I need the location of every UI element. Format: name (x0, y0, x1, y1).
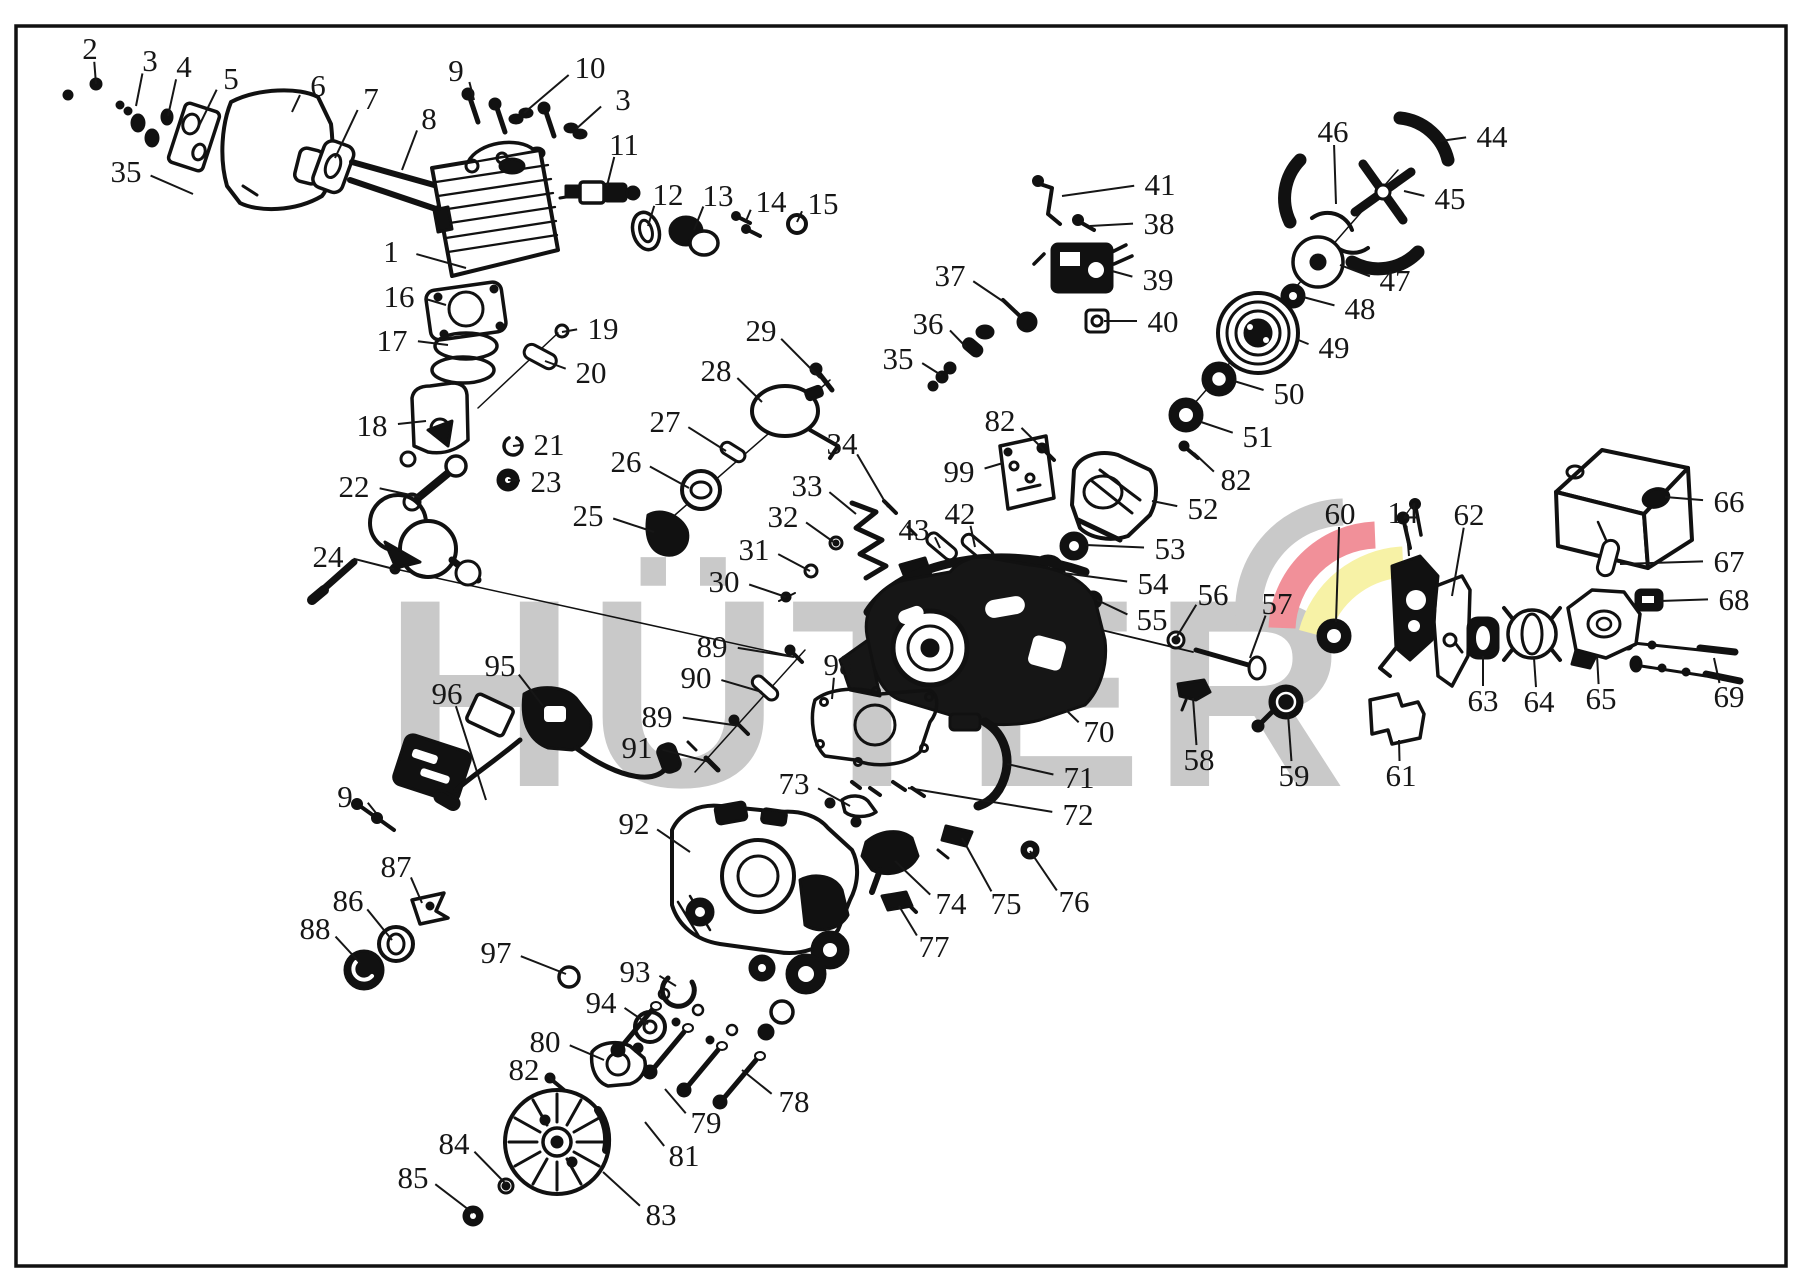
part-number-23: 23 (531, 464, 562, 499)
part-number-99: 99 (944, 454, 975, 489)
part-number-52: 52 (1188, 491, 1219, 526)
part-number-41: 41 (1145, 167, 1176, 202)
part-number-55: 55 (1137, 602, 1168, 637)
part-number-5: 5 (223, 61, 239, 96)
part-number-15: 15 (808, 186, 839, 221)
part-number-82: 82 (985, 403, 1016, 438)
diagram-page: HÜTER (0, 0, 1809, 1283)
part-number-63: 63 (1468, 683, 1499, 718)
part-number-87: 87 (381, 849, 412, 884)
part-number-14: 14 (1388, 495, 1420, 530)
part-number-21: 21 (534, 427, 565, 462)
part-number-59: 59 (1279, 758, 1310, 793)
part-oil-seal (1318, 620, 1350, 652)
part-number-64: 64 (1524, 684, 1556, 719)
part-number-20: 20 (576, 355, 607, 390)
part-number-22: 22 (339, 469, 370, 504)
part-number-18: 18 (357, 408, 388, 443)
part-number-13: 13 (703, 178, 734, 213)
part-number-88: 88 (300, 911, 331, 946)
part-number-79: 79 (691, 1105, 722, 1140)
part-number-35: 35 (883, 341, 914, 376)
part-number-66: 66 (1714, 484, 1745, 519)
part-number-28: 28 (701, 353, 732, 388)
part-number-47: 47 (1380, 263, 1411, 298)
part-number-27: 27 (650, 404, 681, 439)
part-number-7: 7 (363, 81, 379, 116)
part-number-44: 44 (1477, 119, 1509, 154)
part-number-6: 6 (310, 68, 326, 103)
part-number-51: 51 (1243, 419, 1274, 454)
part-number-58: 58 (1184, 742, 1215, 777)
part-number-31: 31 (739, 532, 770, 567)
part-number-49: 49 (1319, 330, 1350, 365)
part-number-3: 3 (615, 82, 631, 117)
part-number-26: 26 (611, 444, 642, 479)
part-number-29: 29 (746, 313, 777, 348)
part-number-35: 35 (111, 154, 142, 189)
part-number-86: 86 (333, 883, 364, 918)
part-number-84: 84 (439, 1126, 471, 1161)
part-number-90: 90 (681, 660, 712, 695)
part-number-3: 3 (142, 43, 158, 78)
part-number-50: 50 (1274, 376, 1305, 411)
part-number-36: 36 (913, 306, 944, 341)
part-number-10: 10 (575, 50, 606, 85)
part-number-72: 72 (1063, 797, 1094, 832)
part-number-25: 25 (573, 498, 604, 533)
part-number-54: 54 (1138, 566, 1170, 601)
part-number-67: 67 (1714, 544, 1745, 579)
part-number-93: 93 (620, 954, 651, 989)
part-number-16: 16 (384, 279, 415, 314)
diagram-canvas: HÜTER (0, 0, 1809, 1283)
part-number-46: 46 (1318, 114, 1349, 149)
part-number-89: 89 (697, 629, 728, 664)
part-number-60: 60 (1325, 496, 1356, 531)
leader-line-21 (513, 445, 523, 446)
part-number-85: 85 (398, 1160, 429, 1195)
part-number-94: 94 (586, 985, 618, 1020)
part-number-81: 81 (669, 1138, 700, 1173)
part-number-17: 17 (377, 323, 408, 358)
part-number-33: 33 (792, 468, 823, 503)
part-number-89: 89 (642, 699, 673, 734)
part-number-1: 1 (383, 234, 399, 269)
part-number-76: 76 (1059, 884, 1090, 919)
part-number-57: 57 (1262, 586, 1293, 621)
part-number-48: 48 (1345, 291, 1376, 326)
part-number-95: 95 (485, 648, 516, 683)
part-number-68: 68 (1719, 582, 1750, 617)
part-number-92: 92 (619, 806, 650, 841)
part-number-82: 82 (509, 1052, 540, 1087)
part-number-2: 2 (82, 31, 98, 66)
part-number-43: 43 (899, 512, 930, 547)
part-number-32: 32 (768, 499, 799, 534)
part-number-45: 45 (1435, 181, 1466, 216)
part-number-74: 74 (936, 886, 968, 921)
part-number-34: 34 (827, 426, 859, 461)
part-number-30: 30 (709, 564, 740, 599)
part-number-97: 97 (481, 935, 512, 970)
part-number-62: 62 (1454, 497, 1485, 532)
part-number-53: 53 (1155, 531, 1186, 566)
part-number-83: 83 (646, 1197, 677, 1232)
part-number-98: 98 (824, 647, 855, 682)
part-number-75: 75 (991, 886, 1022, 921)
part-bar-plate (1000, 436, 1054, 509)
part-number-38: 38 (1144, 206, 1175, 241)
part-number-78: 78 (779, 1084, 810, 1119)
part-muffler-cover (222, 90, 332, 209)
part-number-19: 19 (588, 311, 619, 346)
part-number-70: 70 (1084, 714, 1115, 749)
part-number-71: 71 (1064, 760, 1095, 795)
part-number-37: 37 (935, 258, 966, 293)
part-number-61: 61 (1386, 758, 1417, 793)
part-number-8: 8 (421, 101, 437, 136)
part-number-69: 69 (1714, 679, 1745, 714)
part-number-77: 77 (919, 929, 950, 964)
part-number-42: 42 (945, 496, 976, 531)
part-number-91: 91 (622, 730, 653, 765)
part-number-65: 65 (1586, 681, 1617, 716)
part-number-96: 96 (432, 676, 463, 711)
part-number-39: 39 (1143, 262, 1174, 297)
part-number-14: 14 (756, 184, 788, 219)
part-number-4: 4 (176, 49, 192, 84)
part-number-9: 9 (448, 53, 464, 88)
part-number-24: 24 (313, 539, 345, 574)
part-number-11: 11 (609, 127, 639, 162)
leader-line-23 (508, 480, 520, 481)
part-number-40: 40 (1148, 304, 1179, 339)
part-number-56: 56 (1198, 577, 1229, 612)
part-number-82: 82 (1221, 462, 1252, 497)
part-number-9: 9 (337, 779, 353, 814)
part-number-73: 73 (779, 766, 810, 801)
part-number-12: 12 (653, 177, 684, 212)
